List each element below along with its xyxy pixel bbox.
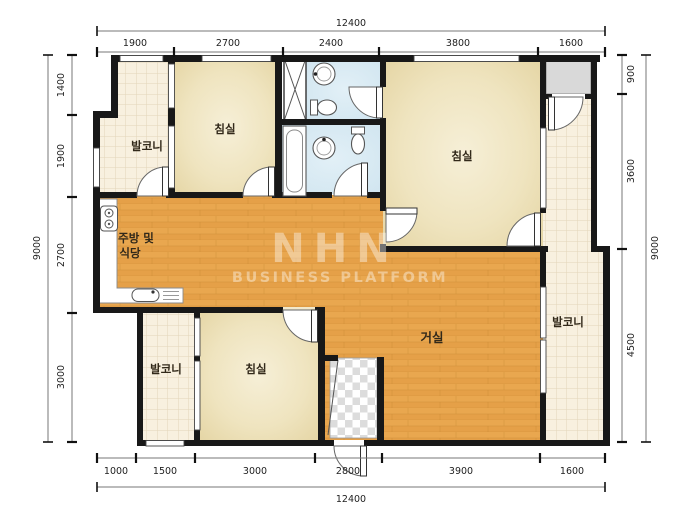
dim-top-seg3: 2400 xyxy=(319,38,343,49)
label-balcony-bottom-left: 발코니 xyxy=(150,362,182,376)
dim-right-total: 9000 xyxy=(650,236,661,260)
dim-bottom-seg1: 1000 xyxy=(104,466,128,477)
dim-bottom-seg5: 3900 xyxy=(449,466,473,477)
dim-top-seg5: 1600 xyxy=(559,38,583,49)
dim-left-seg3: 2700 xyxy=(56,243,67,267)
storage-box xyxy=(546,58,591,94)
bathtub-icon xyxy=(283,126,306,196)
label-balcony-right: 발코니 xyxy=(552,315,584,329)
label-living-room: 거실 xyxy=(420,330,443,345)
watermark-subtitle: BUSINESS PLATFORM xyxy=(232,270,448,286)
dim-top-seg4: 3800 xyxy=(446,38,470,49)
dim-left-seg2: 1900 xyxy=(56,144,67,168)
label-kitchen-line2: 식당 xyxy=(119,246,141,260)
toilet-top-icon xyxy=(311,100,337,115)
dim-right-seg3: 4500 xyxy=(626,333,637,357)
dim-bottom-seg3: 3000 xyxy=(243,466,267,477)
dim-bottom-total: 12400 xyxy=(336,494,366,505)
duct-shaft xyxy=(284,58,306,121)
stove-icon xyxy=(101,206,118,231)
washbasin-top-icon xyxy=(313,63,335,85)
dim-bottom-seg2: 1500 xyxy=(153,466,177,477)
label-bedroom-bottom: 침실 xyxy=(245,362,266,376)
watermark-brand: NHN xyxy=(271,226,398,272)
dim-left-seg1: 1400 xyxy=(56,73,67,97)
label-bedroom-top-left: 침실 xyxy=(214,122,235,136)
dim-bottom-seg4: 2800 xyxy=(336,466,360,477)
label-kitchen-line1: 주방 및 xyxy=(118,231,154,245)
dim-right-seg1: 900 xyxy=(626,65,637,83)
dim-top-seg2: 2700 xyxy=(216,38,240,49)
toilet-ensuite-icon xyxy=(352,127,365,154)
dim-bottom-seg6: 1600 xyxy=(560,466,584,477)
washbasin-ensuite-icon xyxy=(313,137,335,159)
dim-right-seg2: 3600 xyxy=(626,159,637,183)
dim-top-seg1: 1900 xyxy=(123,38,147,49)
floor-plan-drawing: NHN BUSINESS PLATFORM 발코니 침실 침실 주방 및 식당 … xyxy=(0,0,700,506)
label-balcony-top-left: 발코니 xyxy=(131,139,163,153)
dim-left-total: 9000 xyxy=(32,236,43,260)
dim-top-total: 12400 xyxy=(336,18,366,29)
floor-plan-page: NHN BUSINESS PLATFORM 발코니 침실 침실 주방 및 식당 … xyxy=(0,0,700,506)
dim-left-seg4: 3000 xyxy=(56,365,67,389)
label-bedroom-top-right: 침실 xyxy=(451,149,472,163)
room-balcony-bottom-left-floor xyxy=(140,313,197,441)
